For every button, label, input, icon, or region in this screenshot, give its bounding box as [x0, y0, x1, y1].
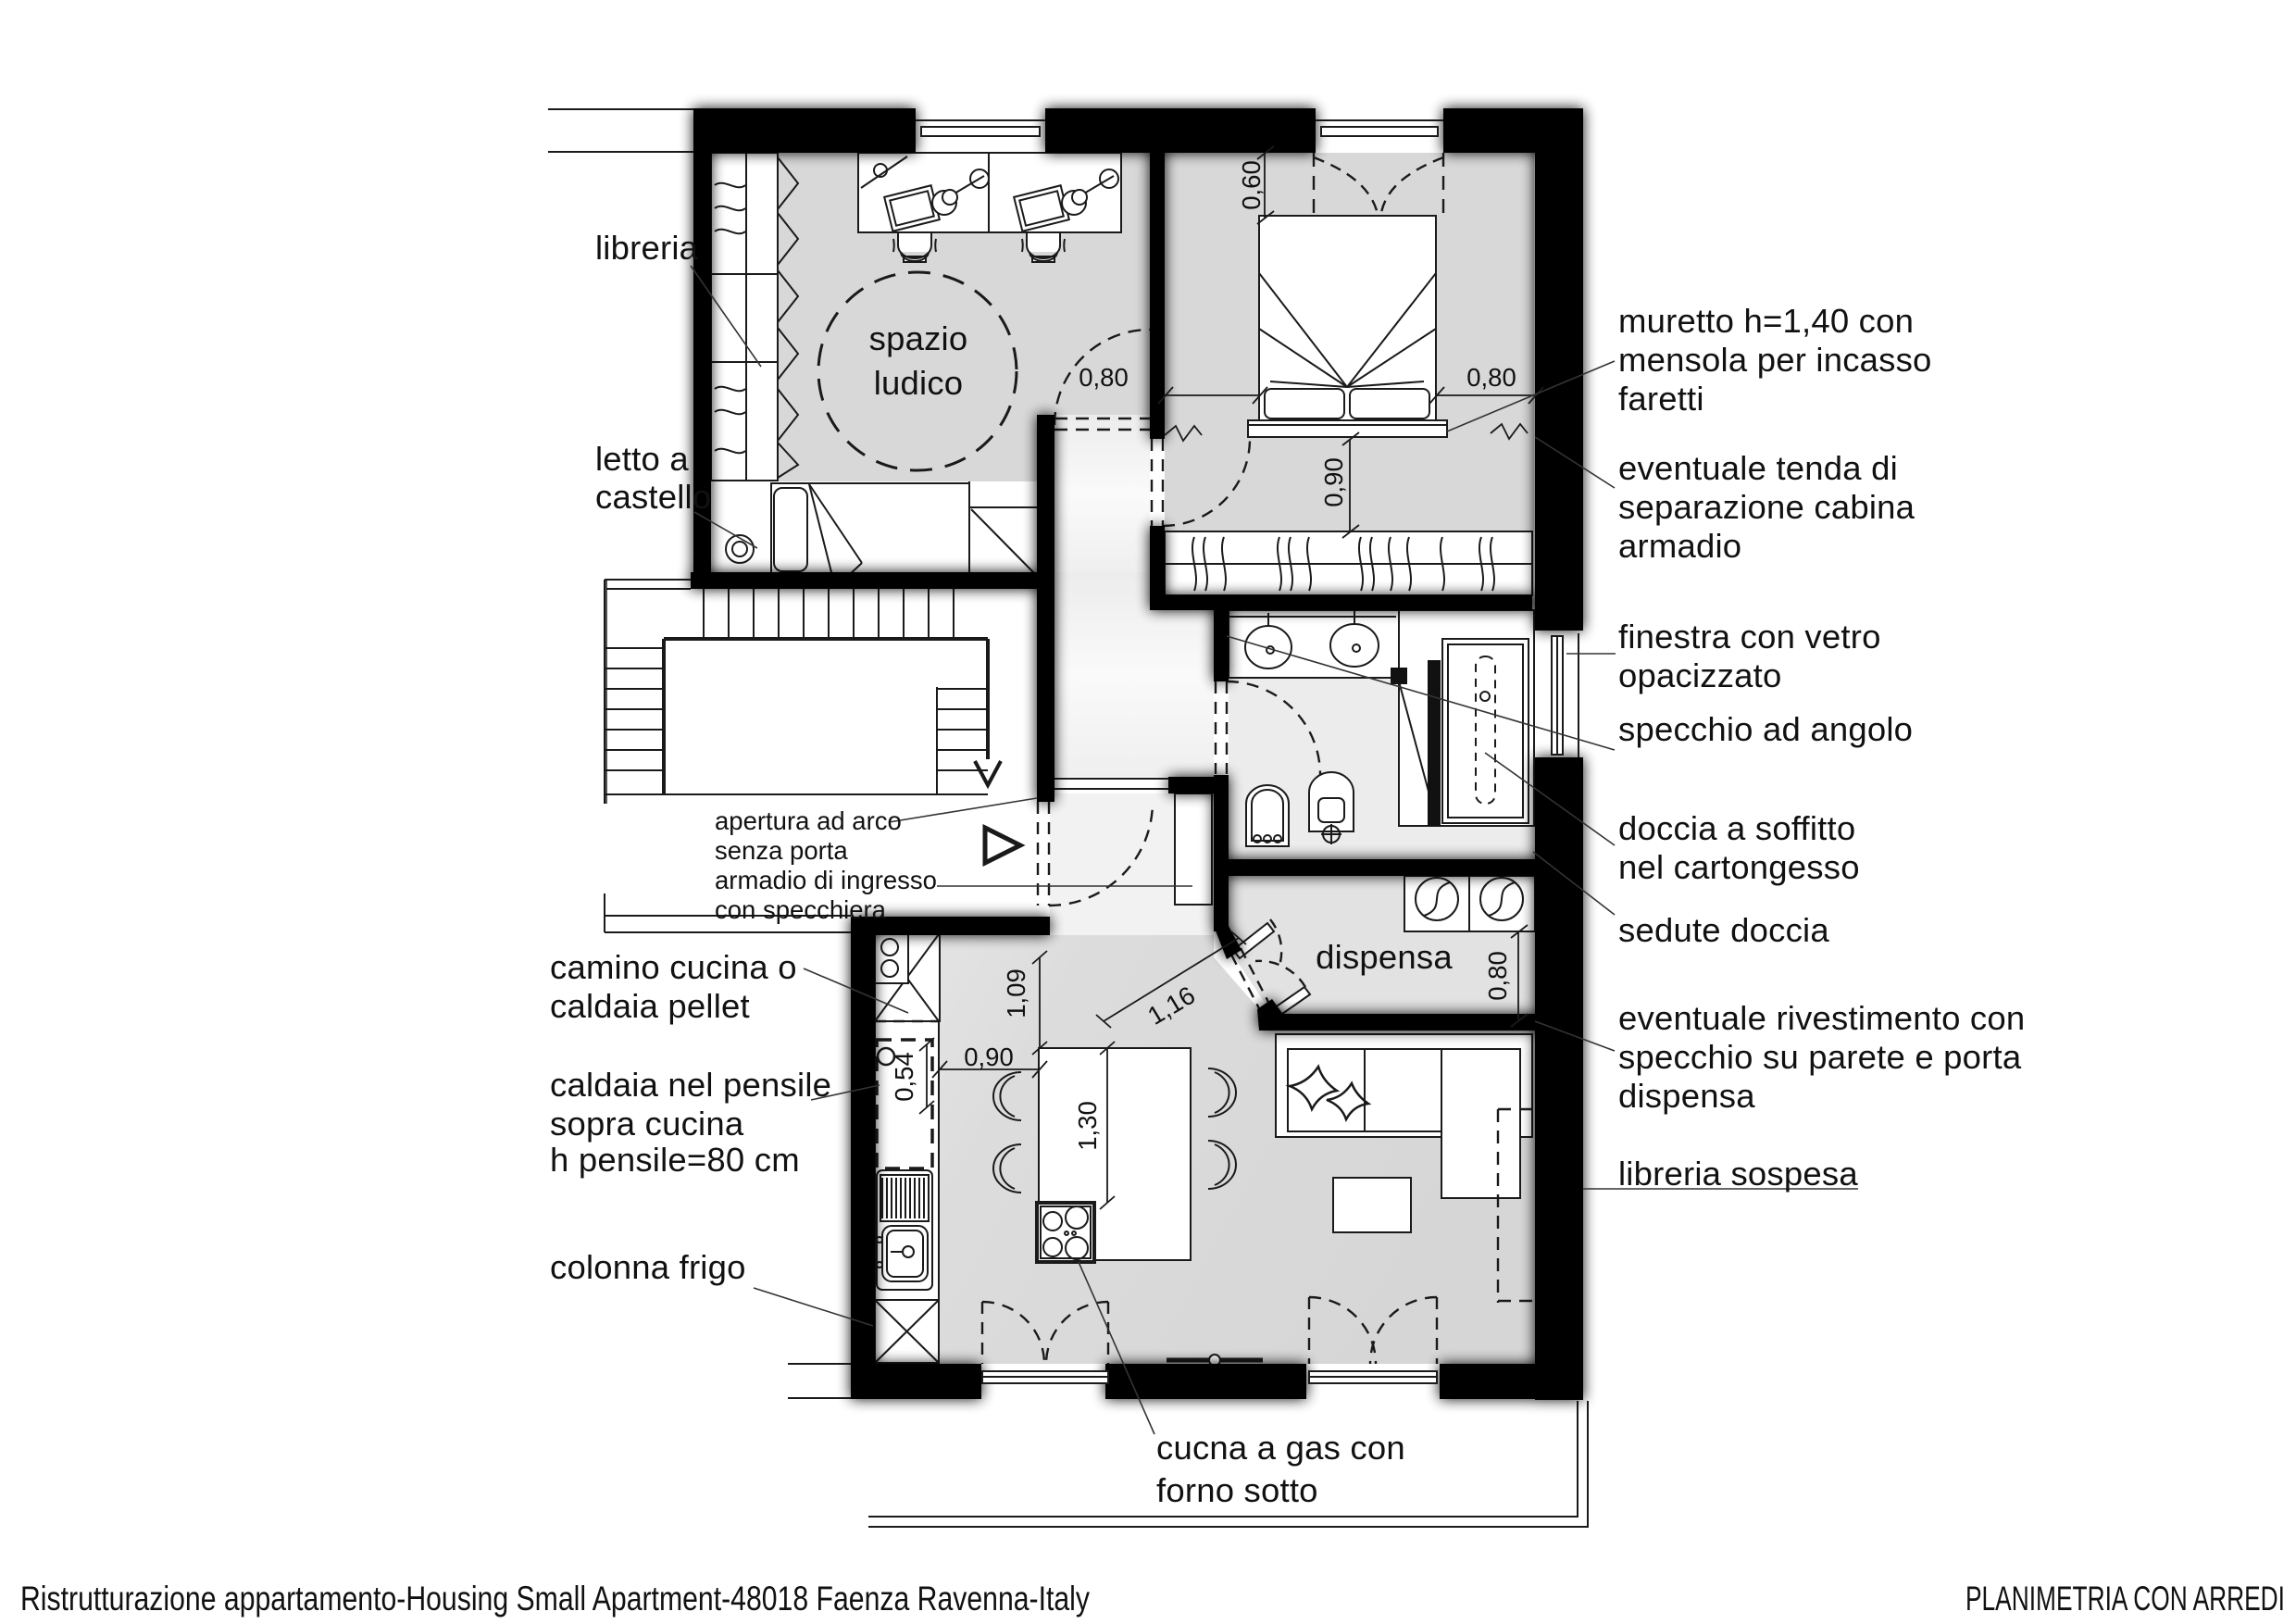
svg-text:dispensa: dispensa: [1618, 1077, 1755, 1115]
svg-text:eventuale tenda di: eventuale tenda di: [1618, 449, 1898, 487]
svg-text:separazione cabina: separazione cabina: [1618, 488, 1915, 526]
svg-text:spazio: spazio: [869, 319, 968, 357]
svg-text:colonna frigo: colonna frigo: [550, 1248, 746, 1286]
svg-text:armadio di ingresso: armadio di ingresso: [715, 866, 937, 894]
svg-text:cucna a gas con: cucna a gas con: [1156, 1429, 1405, 1467]
svg-text:forno sotto: forno sotto: [1156, 1471, 1318, 1509]
svg-text:letto a: letto a: [595, 440, 689, 478]
svg-text:specchio ad angolo: specchio ad angolo: [1618, 710, 1913, 748]
svg-text:camino cucina o: camino cucina o: [550, 948, 797, 986]
svg-text:apertura ad arco: apertura ad arco: [715, 806, 902, 835]
svg-text:senza porta: senza porta: [715, 836, 848, 865]
svg-text:armadio: armadio: [1618, 527, 1741, 565]
svg-text:mensola per incasso: mensola per incasso: [1618, 341, 1932, 379]
svg-text:ludico: ludico: [874, 364, 964, 402]
svg-text:con specchiera: con specchiera: [715, 895, 887, 924]
svg-text:0,60: 0,60: [1237, 160, 1266, 210]
svg-text:1,30: 1,30: [1073, 1101, 1102, 1151]
svg-text:specchio su parete e porta: specchio su parete e porta: [1618, 1038, 2022, 1076]
svg-text:0,80: 0,80: [1483, 951, 1512, 1001]
svg-text:PLANIMETRIA CON ARREDI: PLANIMETRIA CON ARREDI: [1965, 1580, 2285, 1618]
svg-text:dispensa: dispensa: [1316, 938, 1453, 976]
svg-text:caldaia pellet: caldaia pellet: [550, 987, 750, 1025]
svg-text:opacizzato: opacizzato: [1618, 656, 1782, 694]
svg-text:sopra cucina: sopra cucina: [550, 1105, 744, 1143]
svg-text:h pensile=80 cm: h pensile=80 cm: [550, 1141, 800, 1179]
svg-text:nel cartongesso: nel cartongesso: [1618, 848, 1860, 886]
svg-text:faretti: faretti: [1618, 380, 1704, 418]
svg-text:1,09: 1,09: [1002, 968, 1030, 1018]
svg-text:0,90: 0,90: [964, 1043, 1014, 1071]
svg-text:Ristrutturazione appartamento-: Ristrutturazione appartamento-Housing Sm…: [20, 1580, 1090, 1618]
svg-text:doccia a soffitto: doccia a soffitto: [1618, 809, 1855, 847]
svg-text:sedute doccia: sedute doccia: [1618, 911, 1829, 949]
svg-text:0,80: 0,80: [1079, 363, 1129, 392]
svg-text:eventuale rivestimento con: eventuale rivestimento con: [1618, 999, 2025, 1037]
svg-text:muretto h=1,40 con: muretto h=1,40 con: [1618, 302, 1914, 340]
svg-text:caldaia nel pensile: caldaia nel pensile: [550, 1066, 831, 1104]
svg-text:0,80: 0,80: [1466, 363, 1516, 392]
svg-text:finestra con vetro: finestra con vetro: [1618, 618, 1881, 656]
svg-text:libreria sospesa: libreria sospesa: [1618, 1155, 1858, 1193]
svg-text:0,54: 0,54: [890, 1052, 918, 1102]
svg-text:castello: castello: [595, 478, 711, 516]
svg-text:libreria: libreria: [595, 229, 699, 267]
svg-text:0,90: 0,90: [1319, 457, 1348, 507]
